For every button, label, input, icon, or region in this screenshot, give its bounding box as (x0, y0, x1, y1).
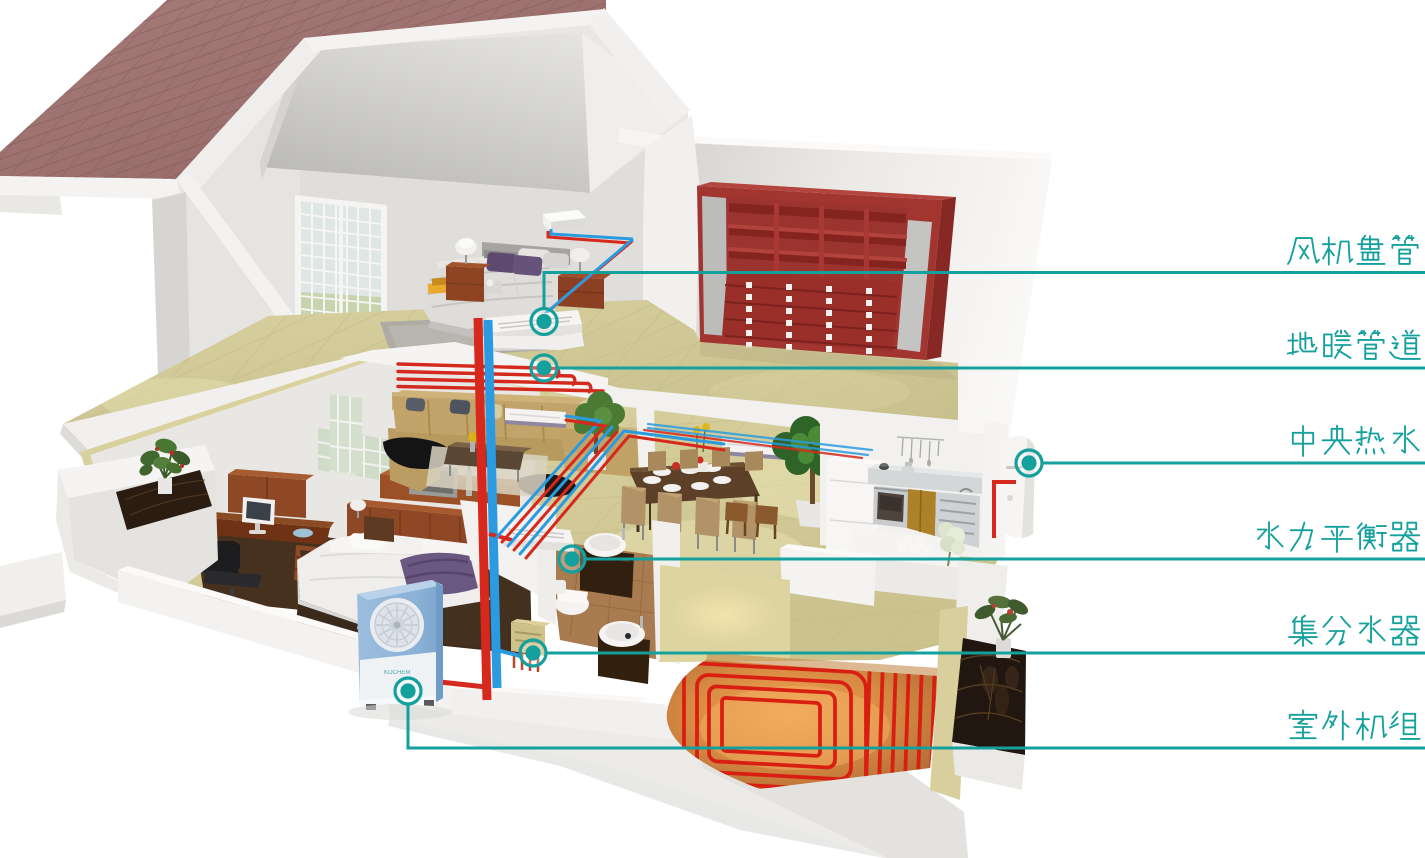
svg-text:KOCHEM: KOCHEM (384, 670, 410, 676)
